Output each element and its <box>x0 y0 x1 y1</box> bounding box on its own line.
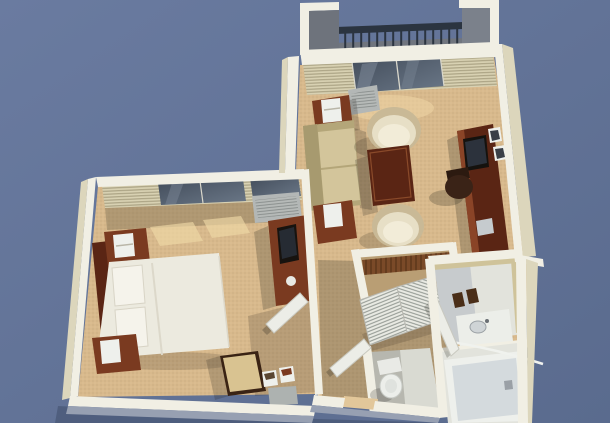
ice-bucket <box>286 276 296 286</box>
barrel-chair-2-cushion <box>383 221 413 243</box>
floorplan-render <box>0 0 610 423</box>
floorplan-svg <box>0 0 610 423</box>
gray-box <box>268 386 298 406</box>
pillow-1 <box>112 265 145 306</box>
console-tray <box>476 218 494 236</box>
sink-faucet <box>485 319 489 323</box>
dresser-tv-screen <box>279 227 297 259</box>
sink <box>470 321 486 333</box>
barrel-chair-1-cushion <box>378 124 410 148</box>
nightstand-lamp-2 <box>100 339 121 364</box>
desk-chair <box>445 175 473 199</box>
balcony-pillar-left-face <box>309 10 339 52</box>
sofa-cushion-1 <box>318 128 357 168</box>
luggage-bench-cushion <box>223 354 262 392</box>
balcony-pillar-right-face <box>462 8 490 47</box>
table-lamp-2 <box>323 203 343 228</box>
tub-faucet <box>504 380 513 390</box>
bathtub-basin <box>452 358 522 421</box>
toilet-seat <box>385 379 397 393</box>
bathroom-wall-east <box>516 259 528 423</box>
sofa-cushion-2 <box>321 166 360 204</box>
bedroom <box>78 176 317 406</box>
console-tv-screen <box>465 138 487 167</box>
